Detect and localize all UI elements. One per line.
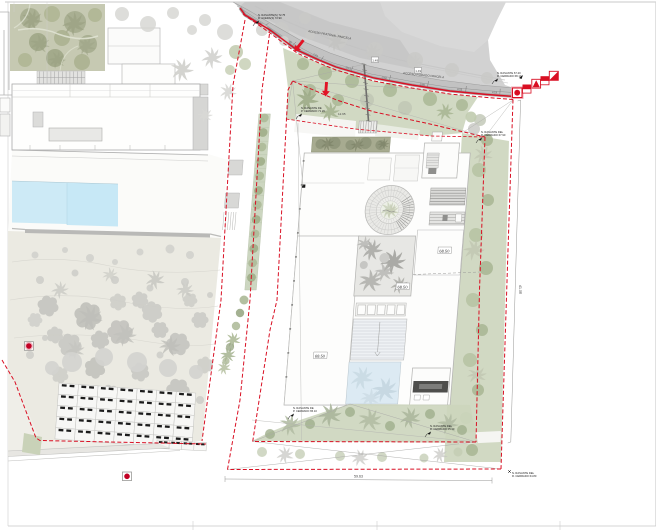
svg-text:R. ACERA(S) 72.90: R. ACERA(S) 72.90 (258, 16, 282, 20)
svg-text:68.50: 68.50 (397, 284, 408, 289)
svg-text:59.63: 59.63 (354, 475, 363, 479)
svg-text:68.50: 68.50 (315, 353, 326, 358)
svg-text:R. CERRADO 67.90: R. CERRADO 67.90 (481, 133, 506, 137)
svg-text:1.49: 1.49 (415, 69, 421, 73)
svg-text:R. CERRADO 65.10: R. CERRADO 65.10 (430, 427, 455, 431)
svg-text:R. CERRADO 64.80: R. CERRADO 64.80 (512, 474, 537, 478)
svg-text:68.50: 68.50 (439, 248, 450, 253)
svg-text:P. CERRADO 71.20: P. CERRADO 71.20 (301, 109, 325, 113)
svg-text:12.95: 12.95 (338, 112, 346, 116)
svg-text:41.08: 41.08 (518, 285, 522, 294)
svg-text:1.49: 1.49 (372, 59, 378, 63)
svg-text:R. CERRADO 68.10: R. CERRADO 68.10 (497, 74, 522, 78)
svg-text:3.23: 3.23 (457, 87, 463, 91)
svg-text:P. CERRADO 65.10: P. CERRADO 65.10 (293, 409, 317, 413)
